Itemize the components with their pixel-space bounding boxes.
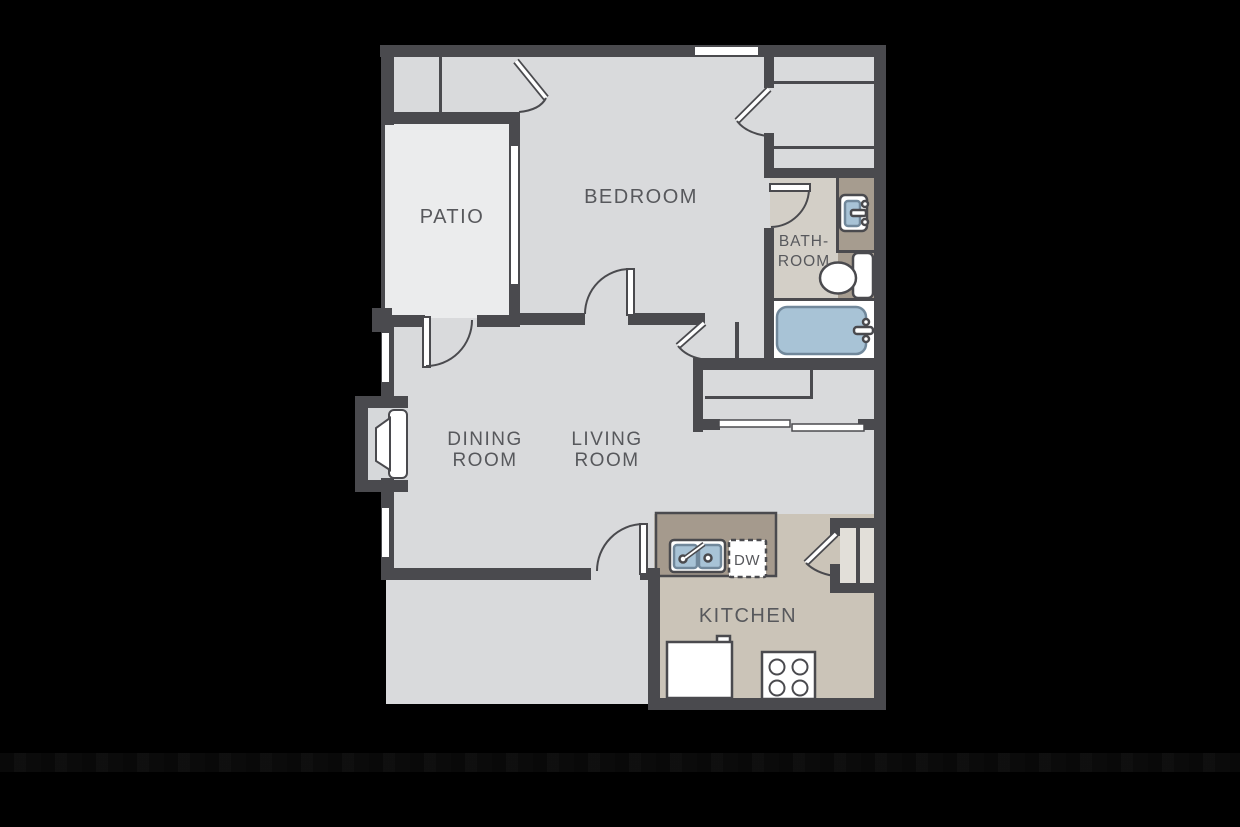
dining-label-line2: ROOM [452, 450, 517, 471]
burner [770, 660, 785, 675]
wall-closet-bath-divider [764, 168, 874, 178]
closet-slider-left [719, 420, 790, 427]
pantry-floor-left [840, 526, 857, 584]
burner [770, 681, 785, 696]
pantry-floor-right [860, 526, 874, 584]
closet-shelf-line-1 [774, 81, 874, 84]
floor-plan-drawing: PATIO BEDROOM BATH- ROOM DINING ROOM LIV… [0, 0, 1240, 827]
living-closet-divider [810, 370, 813, 399]
wall-pantry-bottom [830, 583, 886, 593]
bathroom-label-line1: BATH- [779, 233, 829, 250]
dining-label-line1: DINING [447, 429, 523, 450]
kitchen-label: KITCHEN [699, 605, 797, 627]
pantry-divider [856, 528, 860, 583]
wall-bottom-living [381, 568, 591, 580]
burner [793, 660, 808, 675]
living-label-line2: ROOM [574, 450, 639, 471]
bathroom-sink [840, 195, 868, 231]
vanity-edge-line [836, 176, 839, 252]
dishwasher-label: DW [734, 552, 760, 569]
wall-bedroom-right-upper [764, 57, 774, 88]
living-closet-shelf [705, 396, 813, 399]
patio-label: PATIO [420, 206, 485, 228]
patio-railing [381, 122, 385, 318]
bedroom-label: BEDROOM [584, 186, 698, 208]
kitchen-door-leaf [640, 524, 647, 574]
patio-sliding-door [511, 146, 518, 284]
floor-plan-page: PATIO BEDROOM BATH- ROOM DINING ROOM LIV… [0, 0, 1240, 827]
patio-corner-post [372, 308, 392, 332]
vestibule-wall-bottom [355, 480, 408, 492]
front-door-leaf [389, 410, 407, 478]
wall-patio-bottom-right [477, 315, 520, 327]
bedroom-closet-divider [439, 57, 442, 113]
window-left-upper [382, 333, 389, 382]
window-top-wall [695, 47, 758, 55]
watermark-strip [0, 753, 1240, 772]
bedroom-door-leaf [627, 269, 634, 315]
window-left-lower [382, 508, 389, 557]
living-closet-stub-left [693, 419, 720, 430]
bathroom-label-line2: ROOM [778, 253, 830, 270]
living-label-line1: LIVING [571, 429, 642, 450]
wall-closet-top-tub-bottom [693, 358, 886, 370]
wall-patio-top [381, 112, 520, 124]
refrigerator [667, 636, 732, 698]
wall-right [874, 45, 886, 710]
vestibule-wall-left [355, 396, 368, 492]
patio-door-leaf [423, 317, 430, 367]
stove [762, 652, 815, 699]
bathtub [777, 307, 873, 354]
closet-shelf-line-2 [774, 146, 874, 149]
wall-bedroom-bottom-right [628, 313, 705, 325]
wall-top [380, 45, 886, 57]
wall-bedroom-bottom-left [517, 313, 585, 325]
burner [793, 681, 808, 696]
wall-bath-left [764, 228, 774, 361]
closet-slider-right [792, 424, 864, 431]
wall-kitchen-left [648, 568, 660, 710]
kitchen-sink [670, 540, 725, 572]
bathroom-door-leaf [770, 184, 810, 191]
front-door-wedge [376, 418, 390, 470]
nook-partition [735, 322, 739, 359]
